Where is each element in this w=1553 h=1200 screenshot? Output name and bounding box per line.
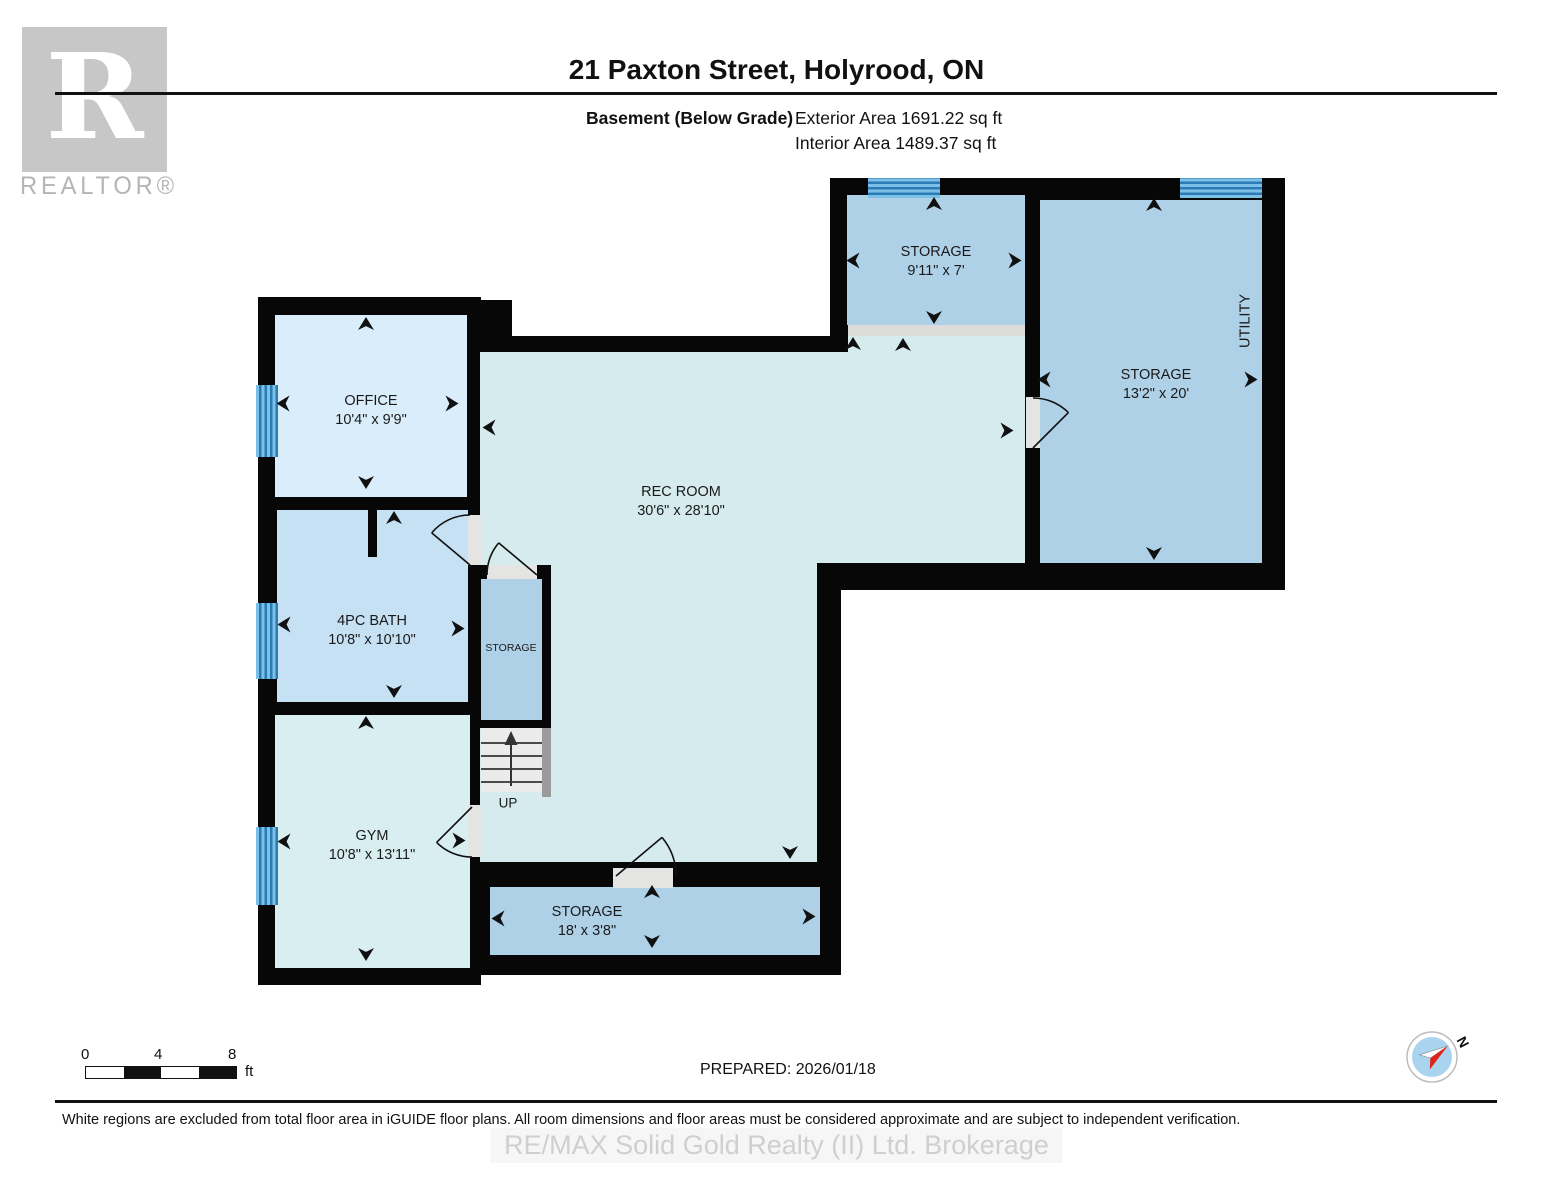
header-divider [55,92,1497,95]
window [256,385,278,457]
floor-plan-page: R REALTOR® 21 Paxton Street, Holyrood, O… [0,0,1553,1200]
window [256,603,278,679]
storage-bottom-floor [490,887,820,955]
compass-north-label: N [1454,1034,1473,1050]
realtor-logo: R [22,27,167,172]
rec-room-floor [480,352,1025,563]
room-label-storage-main: STORAGE 13'2" x 20' [1121,366,1192,404]
stair-tread [481,755,542,757]
wall-opening [848,325,1025,336]
room-label-storage-top: STORAGE 9'11" x 7' [901,243,972,281]
page-title: 21 Paxton Street, Holyrood, ON [0,54,1553,86]
floor-label: Basement (Below Grade) [586,108,793,129]
stair-tread [481,768,542,770]
door-gap [487,565,537,579]
interior-area: Interior Area 1489.37 sq ft [795,133,996,154]
room-label-rec: REC ROOM 30'6" x 28'10" [637,483,725,521]
stairs-up-label: UP [499,794,518,813]
stair-tread [481,742,542,744]
disclaimer-text: White regions are excluded from total fl… [62,1112,1240,1128]
stair-tread [481,781,542,783]
brokerage-watermark: RE/MAX Solid Gold Realty (II) Ltd. Broke… [490,1128,1063,1163]
compass-icon [1403,1028,1461,1086]
door-gap [468,515,481,565]
door-gap [613,868,673,888]
scale-tick-0: 0 [81,1046,89,1063]
scale-unit: ft [245,1063,253,1080]
window [256,827,278,905]
door-gap [468,805,481,857]
room-label-bath: 4PC BATH 10'8" x 10'10" [328,612,416,650]
door-gap [1026,397,1040,448]
realtor-wordmark: REALTOR® [20,172,178,201]
room-label-gym: GYM 10'8" x 13'11" [329,827,416,865]
exterior-area: Exterior Area 1691.22 sq ft [795,108,1002,129]
room-label-storage-bottom: STORAGE 18' x 3'8" [552,903,623,941]
room-label-office: OFFICE 10'4" x 9'9" [335,392,406,430]
window [868,178,940,198]
scale-bar [85,1066,237,1079]
stair-rail [542,728,551,797]
scale-tick-8: 8 [228,1046,236,1063]
window [1180,178,1262,198]
rec-room-floor [848,336,1025,352]
room-label-storage-closet: STORAGE [485,642,536,654]
room-label-utility: UTILITY [1237,294,1256,348]
footer-divider [55,1100,1497,1103]
wall [368,510,377,557]
prepared-date: PREPARED: 2026/01/18 [700,1061,876,1079]
scale-tick-4: 4 [154,1046,162,1063]
